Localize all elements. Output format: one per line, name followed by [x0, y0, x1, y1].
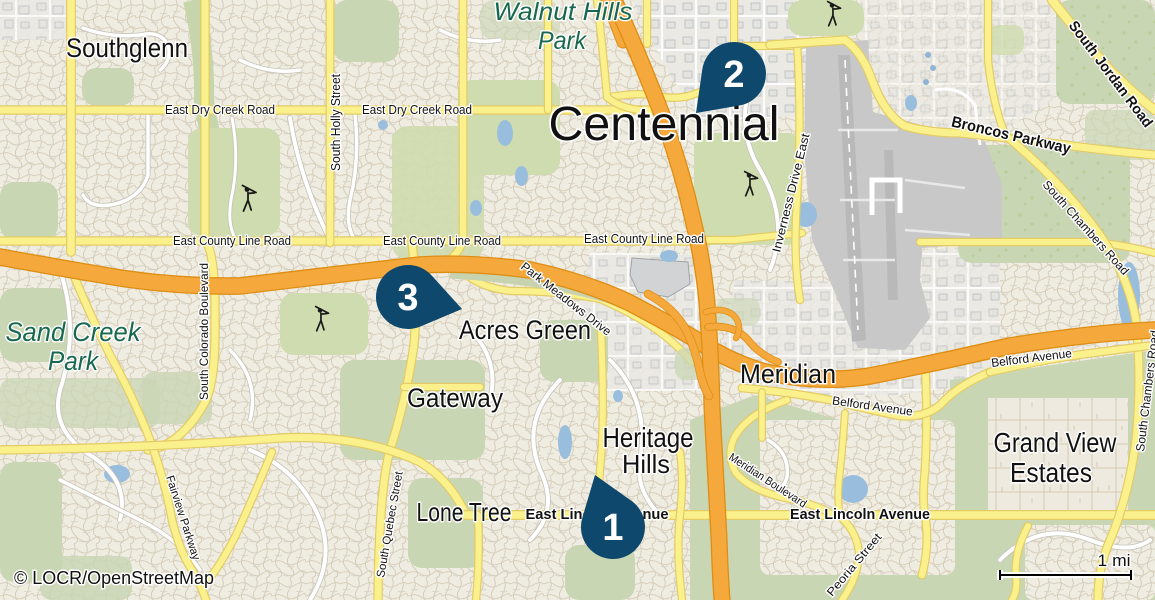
svg-text:Gateway: Gateway: [407, 383, 503, 413]
svg-text:South Holly Street: South Holly Street: [329, 73, 343, 171]
svg-text:Park: Park: [48, 346, 99, 376]
svg-text:East County Line Road: East County Line Road: [383, 233, 501, 248]
svg-text:East County Line Road: East County Line Road: [584, 231, 704, 246]
svg-text:East Lincoln Avenue: East Lincoln Avenue: [790, 507, 930, 523]
svg-text:East Dry Creek Road: East Dry Creek Road: [165, 102, 275, 117]
svg-text:1 mi: 1 mi: [1098, 551, 1131, 570]
svg-text:Hills: Hills: [622, 449, 670, 479]
svg-text:Estates: Estates: [1010, 457, 1092, 488]
svg-text:East Dry Creek Road: East Dry Creek Road: [362, 102, 472, 117]
svg-text:East County Line Road: East County Line Road: [173, 233, 291, 248]
svg-text:Acres Green: Acres Green: [459, 315, 591, 345]
svg-text:Meridian: Meridian: [740, 359, 836, 389]
svg-text:South Colorado Boulevard: South Colorado Boulevard: [197, 263, 211, 400]
svg-text:© LOCR/OpenStreetMap: © LOCR/OpenStreetMap: [14, 568, 214, 588]
svg-text:3: 3: [397, 277, 418, 319]
svg-text:Southglenn: Southglenn: [66, 33, 188, 63]
svg-text:2: 2: [723, 54, 744, 96]
svg-text:1: 1: [602, 507, 623, 549]
svg-text:Centennial: Centennial: [549, 98, 780, 151]
svg-text:Grand View: Grand View: [994, 427, 1118, 458]
svg-text:Park: Park: [538, 27, 587, 55]
svg-text:Sand Creek: Sand Creek: [6, 317, 142, 347]
svg-text:Lone Tree: Lone Tree: [417, 497, 512, 527]
svg-text:Walnut Hills: Walnut Hills: [494, 0, 633, 26]
